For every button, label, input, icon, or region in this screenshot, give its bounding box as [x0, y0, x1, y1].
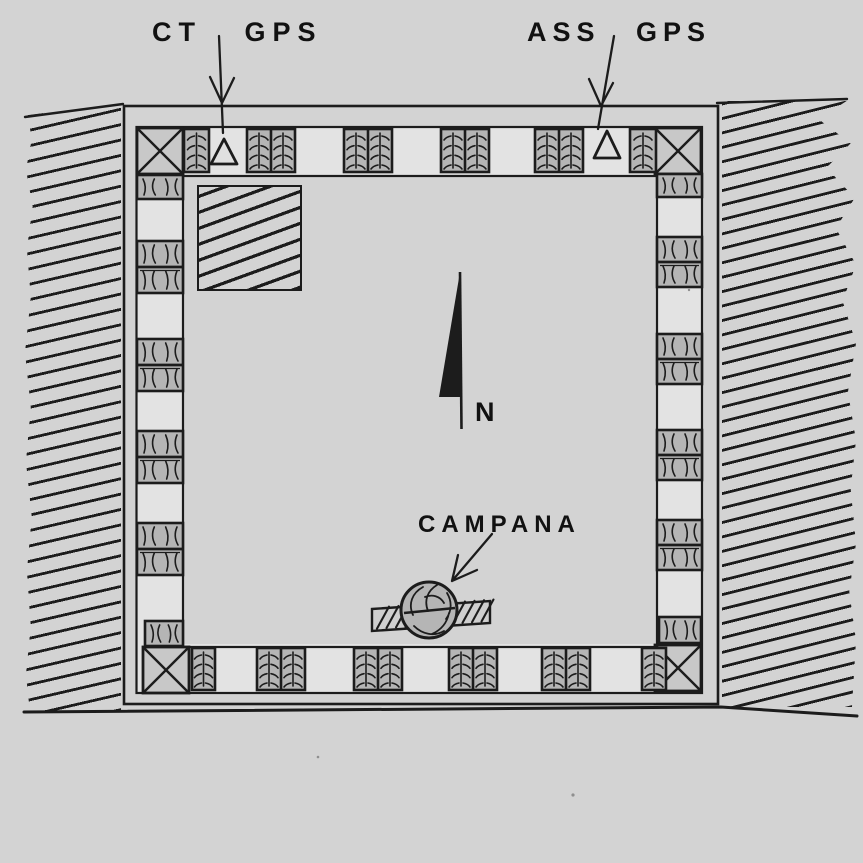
- campana-label: CAMPANA: [418, 511, 581, 538]
- ct-gps-label: CT GPS: [152, 17, 323, 47]
- north-label: N: [475, 397, 495, 427]
- ass-gps-arrow-icon: [589, 36, 614, 129]
- leader-arrows: [210, 36, 614, 581]
- plan-linework: CT GPS ASS GPS CAMPANA N: [0, 0, 863, 863]
- ass-gps-label: ASS GPS: [527, 17, 711, 47]
- site-plan-drawing: CT GPS ASS GPS CAMPANA N: [0, 0, 863, 863]
- ct-gps-arrow-icon: [210, 36, 234, 133]
- north-arrow-icon: [439, 272, 462, 429]
- campana-arrow-icon: [452, 534, 492, 581]
- campana-bell-icon: [372, 582, 494, 638]
- paper-specks: [317, 289, 691, 797]
